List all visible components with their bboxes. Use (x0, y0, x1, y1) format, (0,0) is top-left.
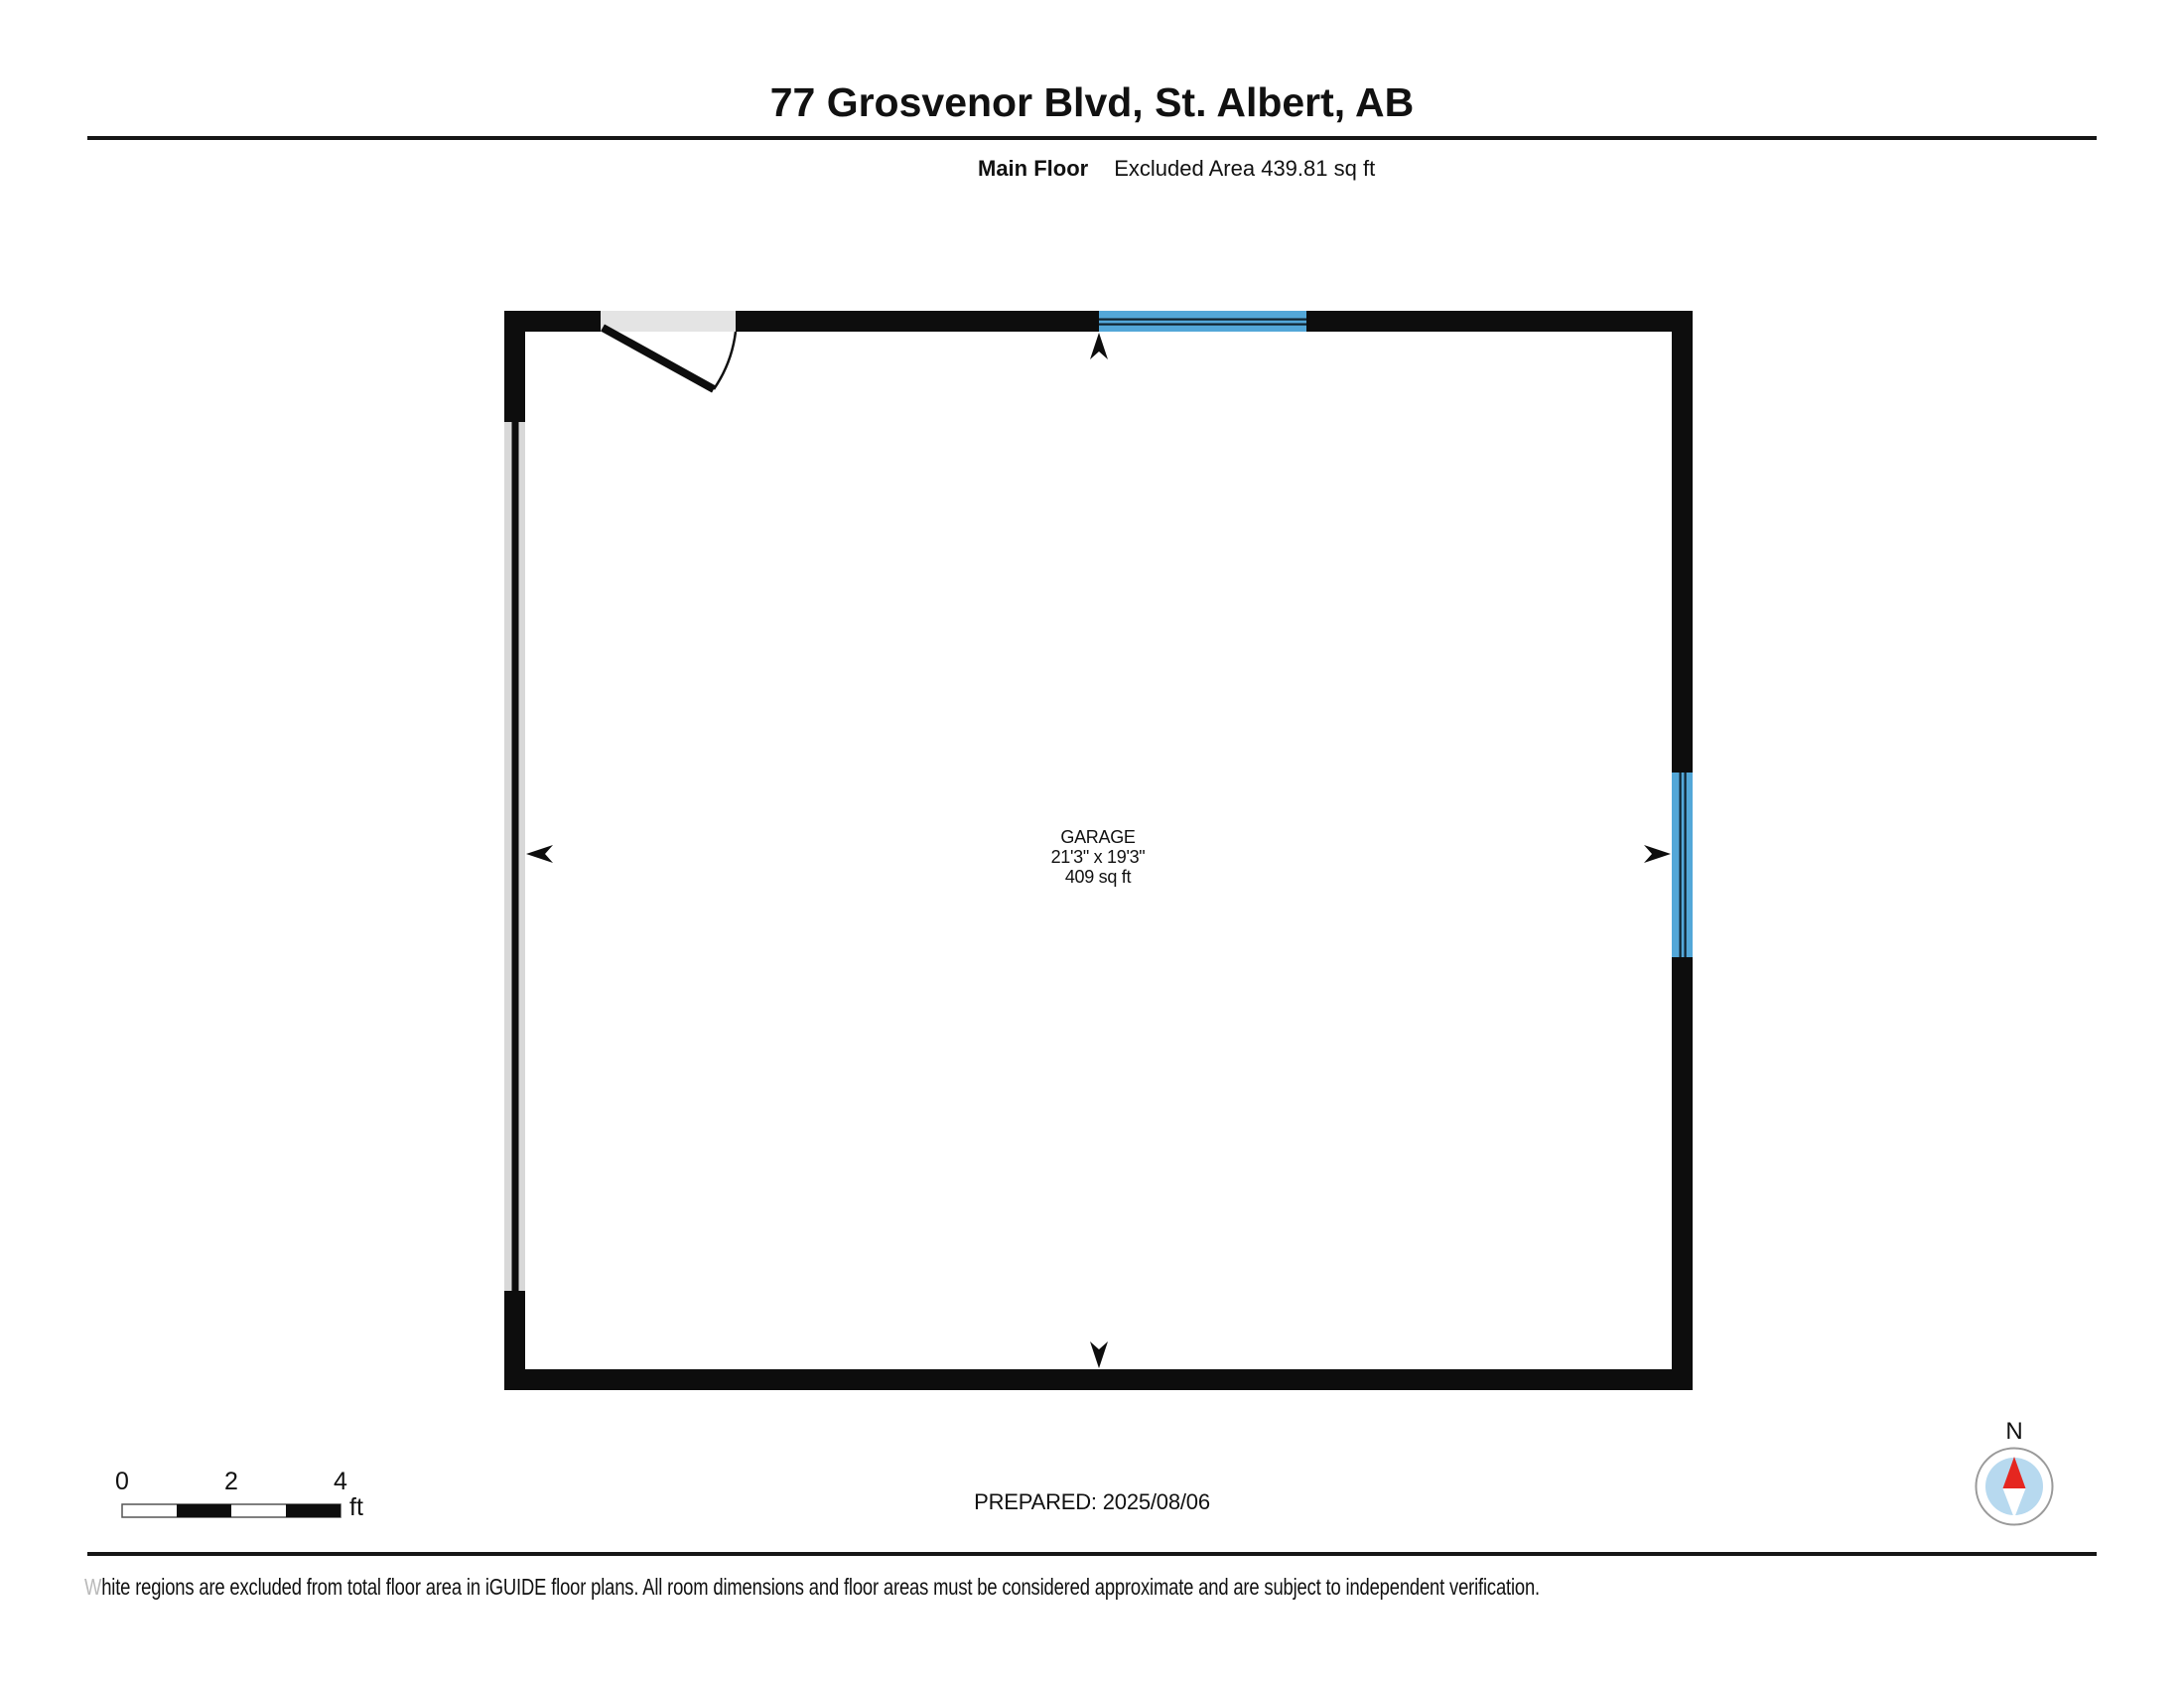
window-right-pane-line-1 (1680, 773, 1682, 957)
wall-left-segment-bottom (504, 1291, 525, 1390)
compass-north-label: N (1994, 1418, 2034, 1446)
wall-top-segment-right (1306, 311, 1693, 332)
dimension-arrow-right (1644, 845, 1671, 863)
dimension-arrow-down (1090, 1341, 1108, 1368)
dimension-arrow-up (1090, 333, 1108, 359)
wall-right-segment-bottom (1672, 957, 1693, 1390)
garage-door (504, 422, 525, 1291)
prepared-date: PREPARED: 2025/08/06 (0, 1489, 2184, 1515)
window-right-glass (1672, 773, 1693, 957)
wall-left-segment-top (504, 311, 525, 422)
disclaimer-text: White regions are excluded from total fl… (84, 1574, 1540, 1601)
window-top-pane-line-1 (1099, 319, 1306, 321)
disclaimer-first-letter: W (84, 1574, 101, 1600)
window-top-pane-line-2 (1099, 324, 1306, 326)
window-right-pane-line-2 (1685, 773, 1687, 957)
room-dimensions: 21'3" x 19'3" (899, 847, 1297, 867)
garage-door-panel (512, 422, 519, 1291)
wall-right-segment-top (1672, 311, 1693, 773)
dimension-arrow-left (526, 845, 553, 863)
window-right (1672, 773, 1693, 957)
window-top (1099, 311, 1306, 332)
disclaimer-body: hite regions are excluded from total flo… (101, 1574, 1540, 1600)
footer-divider (87, 1552, 2097, 1556)
door-opening (601, 311, 736, 332)
room-name: GARAGE (899, 827, 1297, 847)
room-area: 409 sq ft (899, 867, 1297, 887)
entry-door-leaf (603, 328, 714, 389)
room-label: GARAGE 21'3" x 19'3" 409 sq ft (899, 827, 1297, 887)
entry-door-swing-arc (714, 332, 736, 389)
wall-top-segment-middle (736, 311, 1099, 332)
window-top-glass (1099, 311, 1306, 332)
wall-bottom (504, 1369, 1693, 1390)
